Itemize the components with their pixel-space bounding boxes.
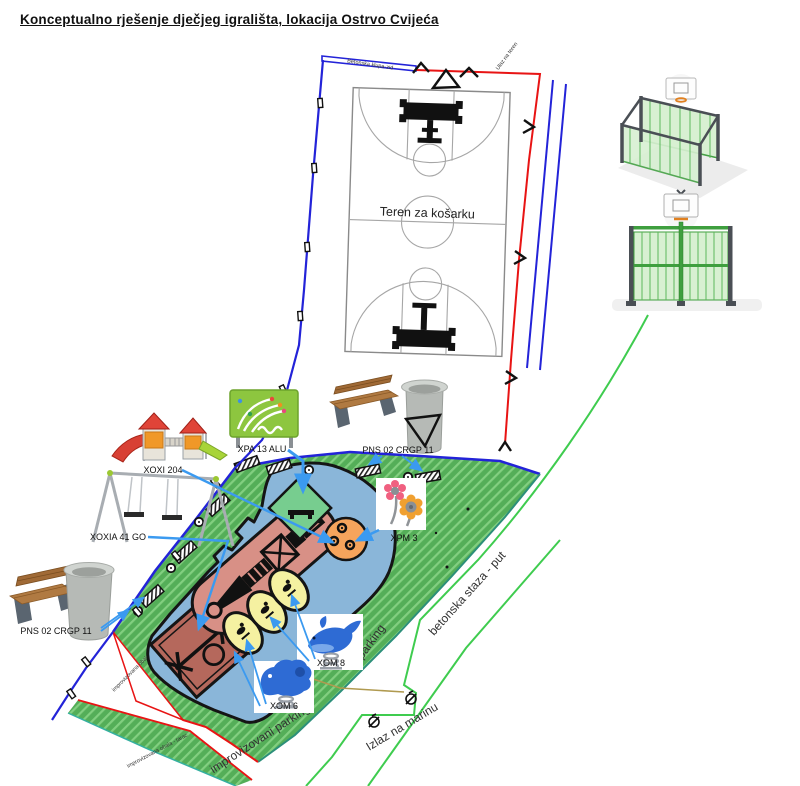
page-title: Konceptualno rješenje dječjeg igrališta,… [20, 12, 439, 27]
playground-tower-image [112, 413, 227, 462]
label-swing: XOXIA 41 GO [90, 532, 146, 542]
basketball-court: Teren za košarku [345, 88, 510, 357]
bench-image-left [10, 566, 74, 624]
court-label: Teren za košarku [380, 205, 476, 222]
flower-spinner-image [376, 478, 426, 530]
site-plan-drawing: improvizovana obala - tarac improvizovan… [0, 0, 800, 786]
label-rider-large: XOM 8 [317, 658, 345, 668]
entrance-label: Ulaz na teren [495, 41, 519, 71]
label-bench-set-top: PNS 02 CRGP 11 [362, 445, 433, 455]
label-spinner: XPM 3 [390, 533, 417, 543]
label-bench-set-left: PNS 02 CRGP 11 [20, 626, 91, 636]
site-plan-page: Konceptualno rješenje dječjeg igrališta,… [0, 0, 800, 786]
goal-unit-perspective-image [618, 74, 748, 198]
label-tower: XOXI 204 [143, 465, 182, 475]
bench-image-top [330, 375, 398, 428]
triangle-marker [433, 70, 459, 88]
fence-line-right-1 [527, 80, 553, 368]
label-rider-small: XOM 6 [270, 701, 298, 711]
activity-panel-image [230, 390, 298, 448]
label-panel: XPA 13 ALU [238, 444, 287, 454]
fence-line-right-2 [540, 84, 566, 370]
trash-can-image-top [402, 380, 448, 453]
goal-unit-front-image [612, 190, 762, 311]
